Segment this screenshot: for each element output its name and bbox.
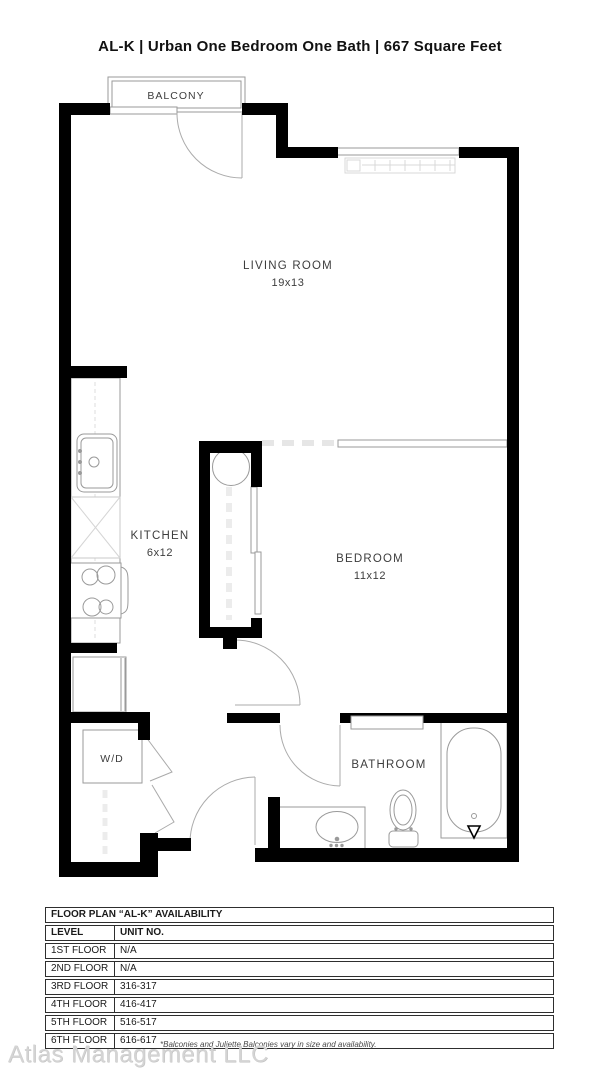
unit-cell: N/A	[115, 962, 553, 976]
management-watermark: Atlas Management LLC	[8, 1041, 269, 1069]
baseboard-heater	[345, 158, 455, 173]
window	[337, 148, 459, 155]
availability-table: FLOOR PLAN “AL-K” AVAILABILITY LEVEL UNI…	[45, 907, 554, 1051]
wall-niche	[351, 716, 423, 729]
bedroom-door	[235, 640, 300, 705]
bedroom-label: BEDROOM	[336, 553, 404, 565]
level-cell: 4TH FLOOR	[46, 998, 115, 1012]
column-level: LEVEL	[46, 926, 115, 940]
water-heater	[213, 449, 250, 486]
bathroom-door	[280, 725, 340, 786]
table-row: 3RD FLOOR 316-317	[45, 979, 554, 995]
unit-cell: N/A	[115, 944, 553, 958]
living-room-label: LIVING ROOM	[243, 260, 333, 272]
table-row: 4TH FLOOR 416-417	[45, 997, 554, 1013]
bedroom-partition	[262, 440, 507, 447]
level-cell: 1ST FLOOR	[46, 944, 115, 958]
kitchen-label: KITCHEN	[131, 530, 190, 542]
unit-cell: 416-417	[115, 998, 553, 1012]
bathtub	[441, 722, 507, 838]
vanity-sink	[277, 807, 365, 849]
bifold-door	[152, 785, 174, 833]
level-cell: 5TH FLOOR	[46, 1016, 115, 1030]
unit-cell: 516-517	[115, 1016, 553, 1030]
table-title-row: FLOOR PLAN “AL-K” AVAILABILITY	[45, 907, 554, 923]
toilet	[389, 790, 418, 847]
table-title: FLOOR PLAN “AL-K” AVAILABILITY	[46, 908, 227, 922]
kitchen-fixtures	[68, 378, 128, 712]
floor-plan: BALCONY LIVING ROOM 19x13 KITCHEN 6x12 B…	[0, 0, 600, 905]
bedroom-dims: 11x12	[354, 570, 386, 582]
dishwasher	[71, 497, 120, 558]
table-row: 5TH FLOOR 516-517	[45, 1015, 554, 1031]
level-cell: 3RD FLOOR	[46, 980, 115, 994]
balcony-door	[177, 113, 242, 178]
bifold-door	[143, 733, 172, 781]
refrigerator	[73, 657, 126, 712]
balcony-label: BALCONY	[147, 90, 204, 102]
stove	[68, 563, 128, 618]
unit-cell: 316-317	[115, 980, 553, 994]
washer-dryer-label: W/D	[100, 753, 123, 765]
living-room-dims: 19x13	[272, 277, 305, 289]
entry-door	[190, 777, 255, 845]
bathroom-label: BATHROOM	[351, 759, 426, 771]
bathroom-fixtures	[277, 716, 507, 849]
kitchen-dims: 6x12	[147, 547, 173, 559]
table-row: 2ND FLOOR N/A	[45, 961, 554, 977]
level-cell: 2ND FLOOR	[46, 962, 115, 976]
table-header-row: LEVEL UNIT NO.	[45, 925, 554, 941]
column-unit-no: UNIT NO.	[115, 926, 553, 940]
table-row: 1ST FLOOR N/A	[45, 943, 554, 959]
